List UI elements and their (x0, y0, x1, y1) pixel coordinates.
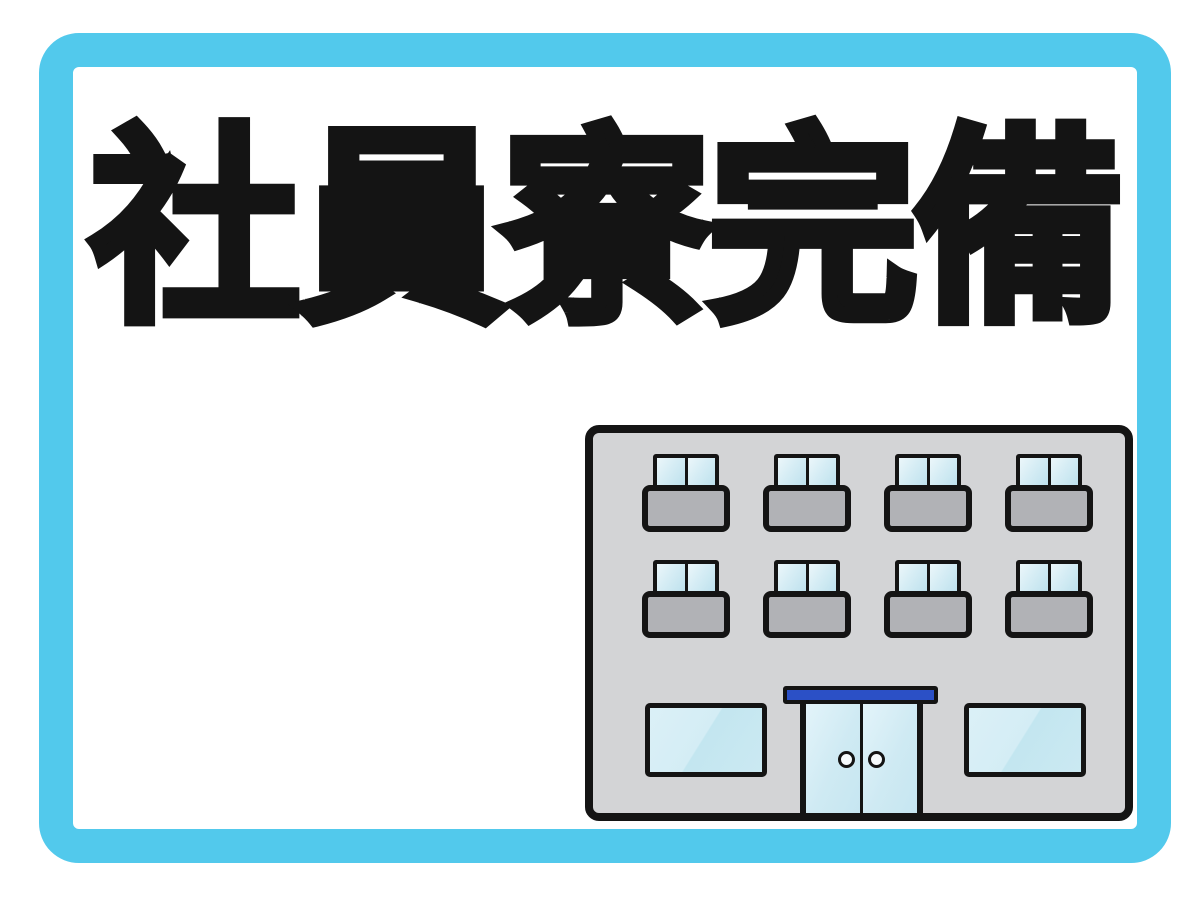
ground-floor-window-right (964, 703, 1086, 777)
balcony-window-unit (884, 454, 972, 532)
ground-floor-window-left (645, 703, 767, 777)
balcony-window-unit (763, 454, 851, 532)
door-handle-icon (868, 751, 885, 768)
door-handle-icon (838, 751, 855, 768)
headline: 社員寮完備 (73, 125, 1137, 335)
balcony-window-unit (884, 560, 972, 638)
balcony-window-unit (1005, 560, 1093, 638)
balcony-window-unit (763, 560, 851, 638)
unit-balcony (763, 591, 851, 638)
unit-balcony (884, 591, 972, 638)
unit-balcony (884, 485, 972, 532)
unit-balcony (1005, 485, 1093, 532)
entrance-door-left-pane (806, 703, 860, 813)
poster-frame: 社員寮完備 (39, 33, 1171, 863)
entrance-awning (783, 686, 938, 704)
dormitory-building-illustration (585, 425, 1133, 821)
unit-balcony (642, 591, 730, 638)
balcony-window-unit (642, 560, 730, 638)
unit-balcony (1005, 591, 1093, 638)
unit-balcony (642, 485, 730, 532)
balcony-window-unit (1005, 454, 1093, 532)
poster: 社員寮完備 (0, 0, 1200, 900)
unit-balcony (763, 485, 851, 532)
entrance-door-right-pane (860, 703, 917, 813)
balcony-window-unit (642, 454, 730, 532)
entrance-door (800, 703, 923, 813)
